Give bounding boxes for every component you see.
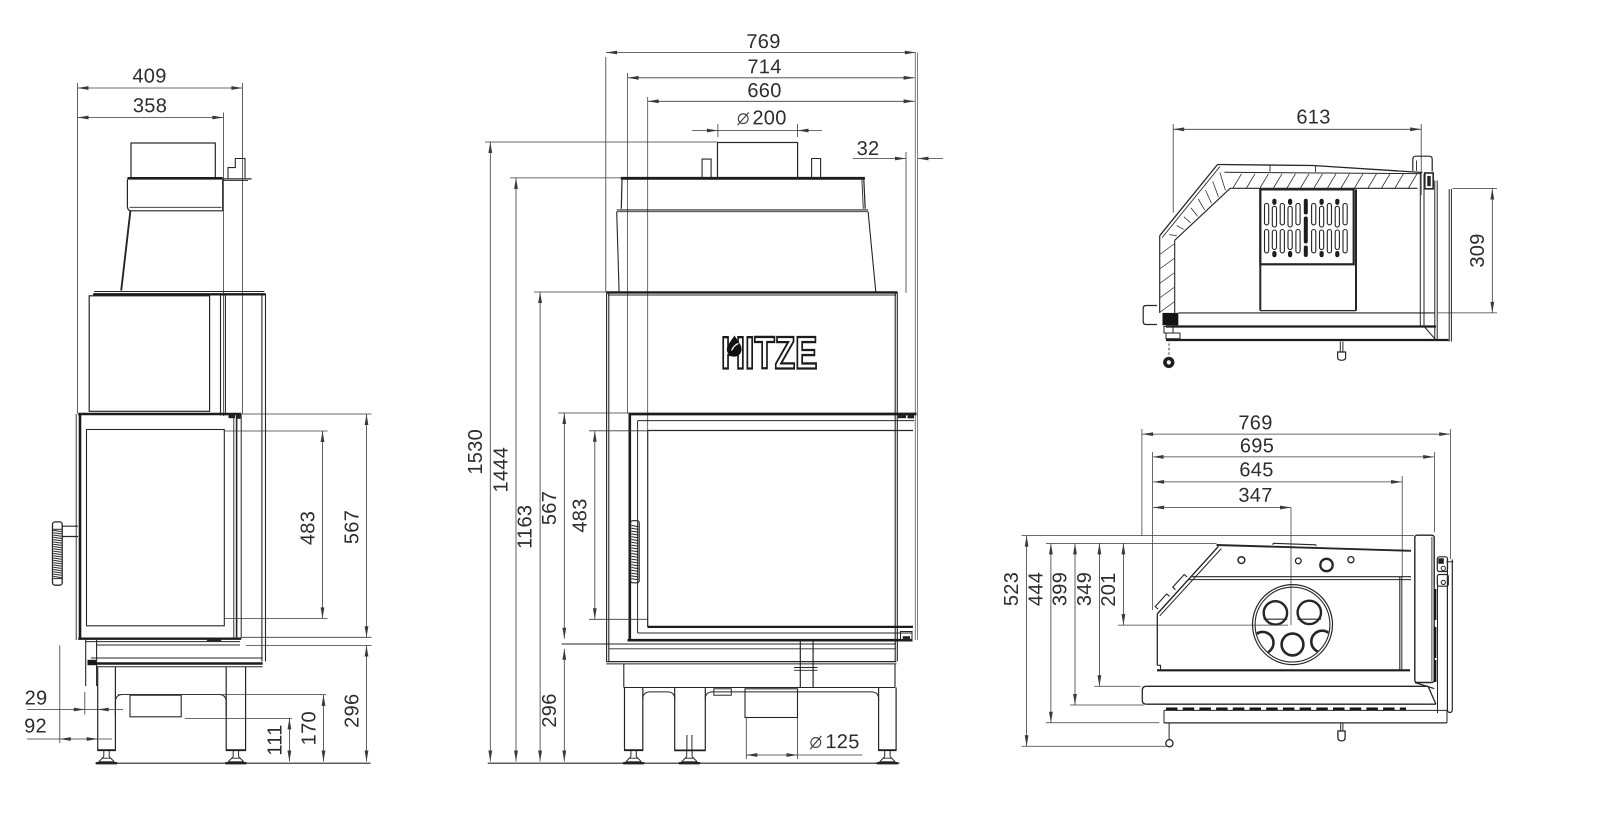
svg-text:695: 695 [1240, 435, 1274, 457]
svg-text:358: 358 [133, 95, 167, 117]
svg-text:111: 111 [265, 724, 287, 755]
svg-text:399: 399 [1049, 572, 1071, 606]
svg-text:296: 296 [539, 693, 561, 727]
svg-text:769: 769 [1238, 412, 1272, 434]
svg-text:29: 29 [25, 687, 48, 709]
svg-text:1530: 1530 [465, 429, 487, 475]
svg-text:201: 201 [1098, 572, 1120, 606]
svg-text:567: 567 [539, 491, 561, 525]
svg-text:296: 296 [342, 694, 364, 728]
svg-text:523: 523 [1001, 572, 1023, 606]
svg-text:1444: 1444 [491, 447, 513, 493]
svg-text:32: 32 [857, 138, 880, 160]
svg-text:1163: 1163 [515, 505, 537, 549]
svg-text:170: 170 [299, 711, 321, 745]
svg-text:349: 349 [1074, 572, 1096, 606]
svg-text:567: 567 [342, 510, 364, 544]
svg-text:714: 714 [747, 56, 781, 78]
svg-text:200: 200 [752, 107, 786, 129]
svg-text:645: 645 [1239, 459, 1273, 481]
svg-text:613: 613 [1296, 106, 1330, 128]
svg-text:483: 483 [298, 511, 320, 545]
svg-text:409: 409 [132, 65, 166, 87]
svg-text:660: 660 [747, 80, 781, 102]
svg-text:309: 309 [1467, 233, 1489, 267]
svg-text:347: 347 [1238, 485, 1272, 507]
svg-text:92: 92 [24, 715, 47, 737]
svg-text:444: 444 [1025, 572, 1047, 606]
svg-text:125: 125 [825, 731, 859, 753]
svg-text:483: 483 [570, 498, 592, 532]
svg-text:769: 769 [746, 31, 780, 53]
